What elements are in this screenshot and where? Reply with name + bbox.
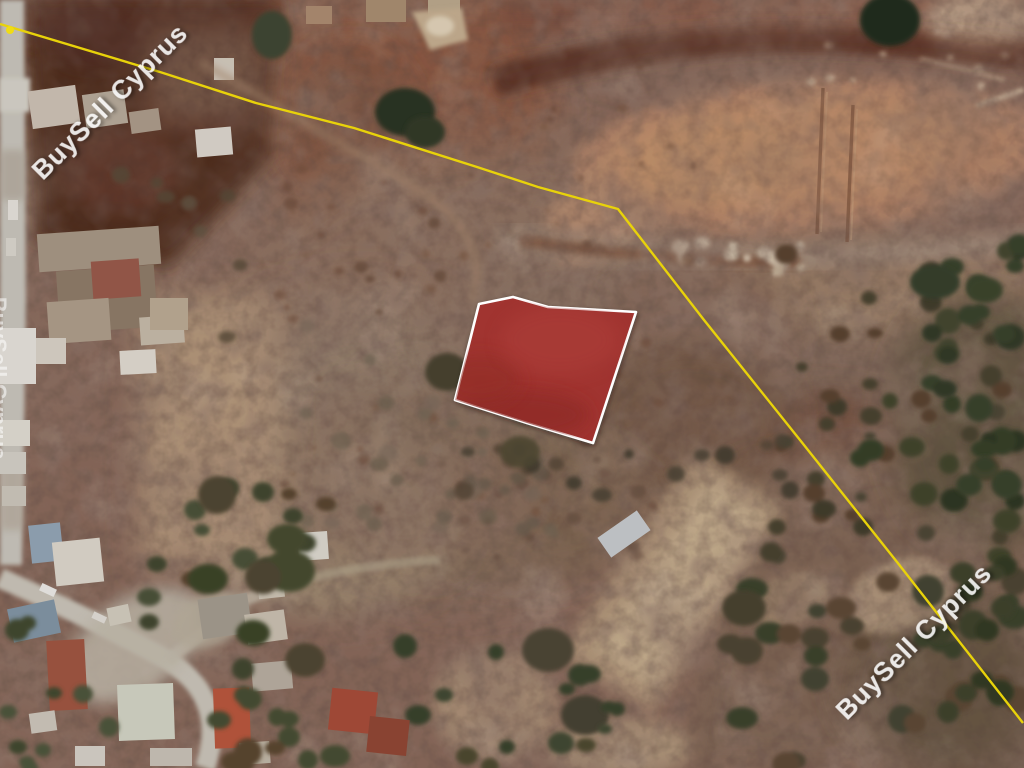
svg-text:BuySell Cyprus: BuySell Cyprus [0, 297, 11, 460]
